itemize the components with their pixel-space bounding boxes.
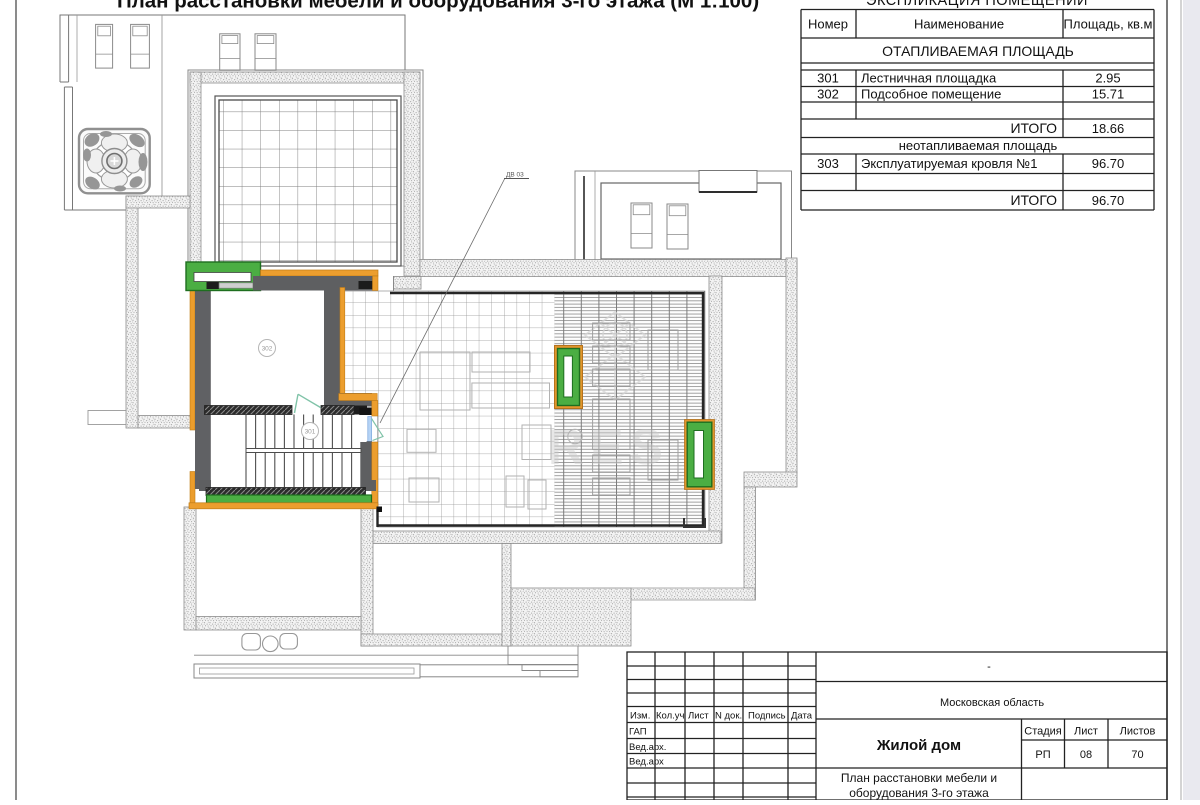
svg-text:Лист: Лист: [688, 711, 709, 722]
svg-text:ЭКСПЛИКАЦИЯ ПОМЕЩЕНИЙ: ЭКСПЛИКАЦИЯ ПОМЕЩЕНИЙ: [866, 0, 1088, 9]
svg-text:неотапливаемая площадь: неотапливаемая площадь: [899, 138, 1058, 153]
svg-text:Лист: Лист: [1074, 726, 1098, 738]
svg-text:ОТАПЛИВАЕМАЯ ПЛОЩАДЬ: ОТАПЛИВАЕМАЯ ПЛОЩАДЬ: [882, 43, 1074, 59]
svg-text:303: 303: [817, 156, 839, 171]
svg-text:ГАП: ГАП: [629, 727, 647, 738]
svg-text:План расстановки мебели и: План расстановки мебели и: [841, 771, 997, 785]
svg-text:Площадь, кв.м: Площадь, кв.м: [1064, 17, 1153, 32]
svg-text:Лестничная площадка: Лестничная площадка: [861, 71, 997, 86]
svg-text:Дата: Дата: [791, 711, 813, 722]
svg-text:Номер: Номер: [808, 17, 848, 32]
svg-text:Эксплуатируемая кровля №1: Эксплуатируемая кровля №1: [861, 156, 1037, 171]
svg-text:оборудования 3-го этажа: оборудования 3-го этажа: [849, 786, 989, 800]
svg-text:15.71: 15.71: [1092, 87, 1125, 102]
svg-text:Подсобное помещение: Подсобное помещение: [861, 87, 1001, 102]
svg-text:Вед.арх: Вед.арх: [629, 757, 664, 768]
svg-text:70: 70: [1131, 749, 1143, 761]
svg-text:RES: RES: [548, 419, 669, 475]
svg-text:302: 302: [262, 346, 273, 353]
svg-text:Вед.арх.: Вед.арх.: [629, 742, 666, 753]
svg-text:301: 301: [817, 71, 839, 86]
svg-text:План расстановки мебели и обор: План расстановки мебели и оборудования 3…: [117, 0, 759, 13]
svg-text:N док.: N док.: [715, 711, 742, 722]
svg-text:302: 302: [817, 87, 839, 102]
svg-text:РП: РП: [1035, 749, 1050, 761]
svg-text:2.95: 2.95: [1095, 71, 1120, 86]
svg-text:96.70: 96.70: [1092, 193, 1125, 208]
svg-text:ИТОГО: ИТОГО: [1010, 120, 1057, 136]
svg-text:Московская область: Московская область: [940, 697, 1044, 709]
svg-text:Листов: Листов: [1120, 726, 1156, 738]
svg-text:Жилой дом: Жилой дом: [876, 737, 961, 754]
svg-text:301: 301: [305, 429, 316, 436]
svg-text:ИТОГО: ИТОГО: [1010, 192, 1057, 208]
svg-text:-: -: [987, 661, 991, 673]
svg-text:18.66: 18.66: [1092, 121, 1125, 136]
svg-text:Изм.: Изм.: [630, 711, 650, 722]
svg-text:Кол.уч: Кол.уч: [656, 711, 685, 722]
svg-text:96.70: 96.70: [1092, 156, 1125, 171]
svg-text:Наименование: Наименование: [914, 17, 1004, 32]
svg-text:ДВ 03: ДВ 03: [506, 172, 524, 179]
svg-text:Подпись: Подпись: [748, 711, 786, 722]
svg-text:Стадия: Стадия: [1024, 726, 1062, 738]
svg-text:08: 08: [1080, 749, 1092, 761]
